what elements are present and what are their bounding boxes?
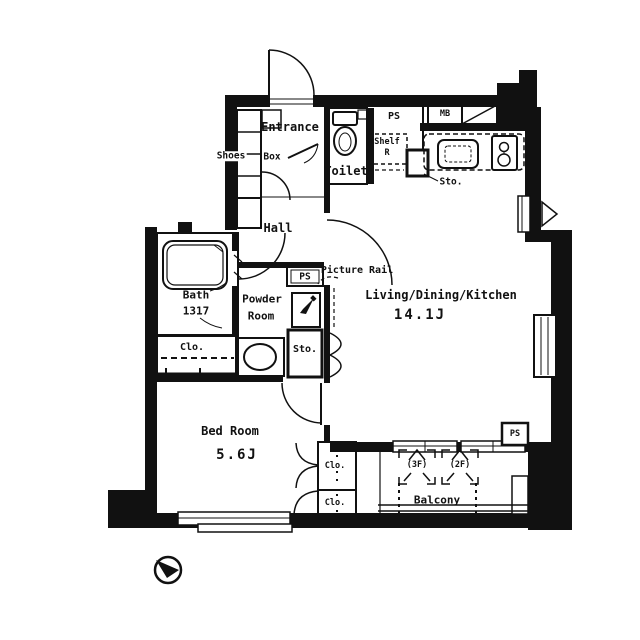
ldk-label: Living/Dining/Kitchen	[365, 289, 517, 301]
floor-plan: Entrance Shoes Box Toilet PS Shelf R MB …	[0, 0, 640, 640]
toilet-door	[288, 144, 318, 163]
picture-rail-label: Picture Rail	[321, 266, 393, 276]
washbasin-icon	[244, 344, 276, 370]
bathtub-icon	[163, 241, 227, 289]
bedroom-size-label: 5.6J	[216, 448, 258, 462]
sto-upper-label: Sto.	[439, 177, 464, 187]
kitchen-sink-icon	[438, 140, 478, 168]
kitchen-counter	[424, 134, 524, 170]
hatch-2f-label: (2F)	[449, 461, 471, 470]
storage-box-upper	[407, 150, 428, 176]
floor-plan-drawing	[0, 0, 640, 640]
folding-door-icon	[330, 333, 341, 377]
toilet-icon	[333, 110, 368, 155]
powder-room-label-2: Room	[248, 311, 275, 322]
bath-label: Bath	[183, 290, 210, 301]
balcony-side-slot	[512, 476, 528, 514]
entrance-label: Entrance	[261, 121, 319, 133]
stove-icon	[492, 136, 517, 170]
bath-leader2	[200, 318, 222, 328]
ps-top-label: PS	[388, 112, 400, 122]
clo-bath-label: Clo.	[179, 343, 205, 353]
bedroom-closet-doors	[294, 443, 318, 515]
meter-box-label: MB	[440, 110, 450, 119]
hall-label: Hall	[264, 222, 293, 234]
vent-triangle-icon	[542, 202, 557, 226]
shelf-label: Shelf	[374, 138, 400, 147]
entrance-door-arc	[269, 50, 314, 104]
ldk-size-label: 14.1J	[394, 308, 446, 322]
bedroom-door	[282, 383, 322, 425]
shelf-label-2: R	[384, 149, 389, 158]
powder-room-label: Powder	[242, 294, 282, 305]
shoes-label: Shoes	[216, 151, 247, 161]
bath-size-label: 1317	[183, 306, 210, 317]
hatch-3f-label: (3F)	[406, 461, 428, 470]
drain-arrow-icon	[300, 295, 317, 314]
window-right-ldk	[534, 315, 556, 377]
bedroom-label: Bed Room	[201, 425, 259, 437]
toilet-label: Toilet	[324, 165, 367, 177]
sto-mid-label: Sto.	[293, 345, 317, 355]
box-label: Box	[262, 152, 281, 162]
compass-icon	[155, 557, 181, 583]
bedroom-window	[178, 512, 292, 532]
ps-mid-label: PS	[299, 272, 310, 282]
balcony-label: Balcony	[414, 495, 460, 506]
clo-bed-lower-label: Clo.	[324, 499, 346, 508]
ps-bottom-label: PS	[510, 430, 520, 439]
clo-bed-upper-label: Clo.	[324, 462, 346, 471]
